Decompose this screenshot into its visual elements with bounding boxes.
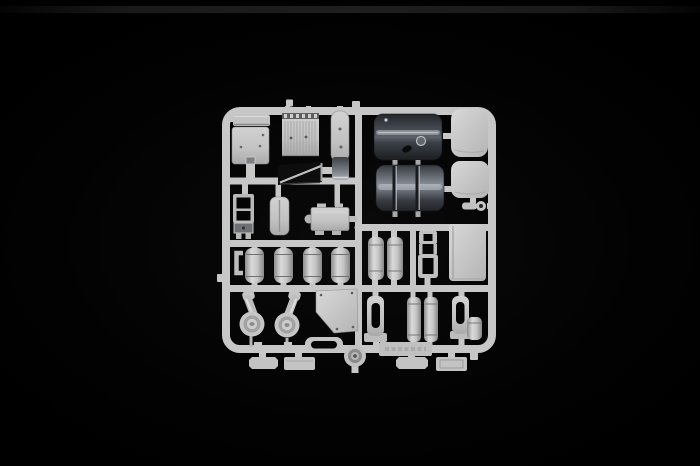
part-corner-panel-2 <box>451 161 489 198</box>
part-base-plate-1 <box>249 357 278 369</box>
part-base-plate-3 <box>396 357 428 369</box>
part-narrow-plate <box>331 111 349 162</box>
part-base-plate-4 <box>436 357 467 371</box>
part-flat-panel-large <box>449 224 486 281</box>
part-gearbox-cover <box>305 204 358 236</box>
frame-nub-bottom-right <box>470 352 478 360</box>
frame-nub-top-1 <box>286 100 293 107</box>
part-sun-visor <box>233 115 270 126</box>
sprue-photo <box>0 0 700 466</box>
part-step-frame <box>305 337 343 352</box>
part-chamfered-panel <box>316 289 358 333</box>
part-air-tank-2 <box>274 248 293 283</box>
part-air-cleaner-2 <box>275 290 302 338</box>
part-base-plate-2 <box>284 357 315 370</box>
part-clip-bracket <box>237 253 244 273</box>
part-marking-plate <box>379 342 432 356</box>
part-grille-panel <box>282 113 319 156</box>
part-slotted-bracket-1 <box>364 296 387 342</box>
part-small-tank-1 <box>407 297 421 342</box>
part-hub-disc <box>344 345 366 367</box>
frame-nub-top-2 <box>352 101 360 109</box>
part-air-tank-1 <box>245 248 264 283</box>
part-twin-tank-2 <box>387 237 403 280</box>
part-twin-tank-1 <box>368 237 384 280</box>
part-ladder-bracket <box>233 194 254 239</box>
part-small-tank-2 <box>424 297 438 342</box>
part-end-cylinder <box>467 317 482 340</box>
part-angled-panel <box>278 162 322 185</box>
part-fuel-tank-lower <box>376 160 444 217</box>
sprue-drawing <box>0 0 700 466</box>
part-air-tank-3 <box>303 248 322 283</box>
part-floor-panel <box>232 127 269 164</box>
part-cushion-panel <box>270 197 289 235</box>
part-air-tank-4 <box>331 248 350 283</box>
part-tow-hook <box>462 201 486 211</box>
part-corner-panel-1 <box>451 109 488 157</box>
part-fuel-tank-upper <box>374 114 442 160</box>
part-open-bracket <box>418 231 438 278</box>
part-air-cleaner-1 <box>240 290 265 337</box>
part-curved-shell <box>332 157 349 180</box>
frame-nub-left <box>217 274 223 282</box>
